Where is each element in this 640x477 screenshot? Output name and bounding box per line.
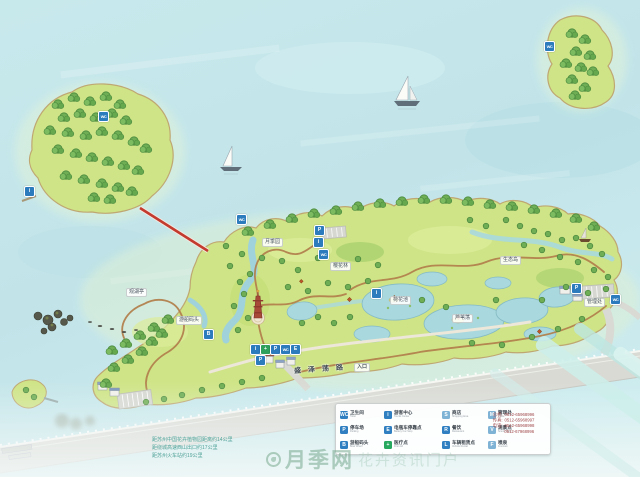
place-label: 月季园 bbox=[262, 238, 283, 247]
watermark-brand: 月季网 bbox=[285, 444, 354, 474]
watermark: 月季网 花卉资讯门户 bbox=[266, 444, 460, 474]
contact-numbers: 总机:0512-65968996 传真:0512-65968997 电话:051… bbox=[493, 412, 546, 435]
distance-line: 距苏州火车站约19公里 bbox=[152, 452, 233, 460]
battery-car-icon: E bbox=[384, 426, 392, 434]
parking-badge: P bbox=[255, 355, 266, 366]
info-badge: i bbox=[24, 186, 35, 197]
legend-item-toilet: WC 卫生间Toilet bbox=[340, 407, 384, 422]
entrance-sign: 入口 bbox=[354, 363, 370, 372]
boat-badge: B bbox=[203, 329, 214, 340]
place-label: 管理处 bbox=[584, 298, 605, 307]
place-label: 游船码头 bbox=[176, 316, 202, 325]
parking-badge: P bbox=[571, 283, 582, 294]
legend-item-tourist-center: i 游客中心Tourist Center bbox=[384, 407, 442, 422]
legend-item-restaurant: R 餐饮Restaurant bbox=[442, 422, 488, 437]
toilet-badge: WC bbox=[318, 249, 329, 260]
fountain-icon: F bbox=[488, 441, 496, 449]
shop-icon: S bbox=[442, 411, 450, 419]
cart-badge: E bbox=[290, 344, 301, 355]
info-badge: i bbox=[371, 288, 382, 299]
place-label: 荷花池 bbox=[390, 296, 411, 305]
legend-item-fountain: F 喷泉Fountain bbox=[488, 437, 532, 452]
watermark-logo-icon bbox=[266, 452, 281, 467]
info-icon: i bbox=[384, 411, 392, 419]
legend-item-battery-car-stop: E 电瓶车停靠点Battery Car Stop bbox=[384, 422, 442, 437]
toilet-badge: WC bbox=[236, 214, 247, 225]
distance-line: 距绕城高速西山出口约17公里 bbox=[152, 444, 233, 452]
place-label: 芦苇荡 bbox=[452, 314, 473, 323]
toilet-icon: WC bbox=[340, 411, 348, 419]
toilet-badge: WC bbox=[544, 41, 555, 52]
roadside-smudge bbox=[55, 414, 95, 430]
distance-line: 距苏州中国花卉植物园距离约14公里 bbox=[152, 436, 233, 444]
rock-islets bbox=[34, 310, 73, 334]
southwest-islet bbox=[12, 380, 58, 408]
restaurant-icon: R bbox=[442, 426, 450, 434]
place-label: 樱花林 bbox=[330, 262, 351, 271]
legend-item-shop: S 商店Shopping Area bbox=[442, 407, 488, 422]
info-badge: i bbox=[313, 237, 324, 248]
place-label: 观湖亭 bbox=[126, 288, 147, 297]
toilet-badge: WC bbox=[610, 294, 621, 305]
parking-badge: P bbox=[314, 225, 325, 236]
watermark-suffix: 花卉资讯门户 bbox=[358, 449, 460, 470]
legend-item-parking: P 停车场Parking bbox=[340, 422, 384, 437]
distance-notes: 距苏州中国花卉植物园距离约14公里 距绕城高速西山出口约17公里 距苏州火车站约… bbox=[152, 436, 233, 460]
parking-icon: P bbox=[340, 426, 348, 434]
place-label: 生态岛 bbox=[500, 256, 521, 265]
sailboat-west bbox=[220, 146, 242, 174]
parking-lot-north bbox=[322, 226, 347, 239]
toilet-badge: WC bbox=[98, 111, 109, 122]
park-map: WC i WC WC P i WC i P WC i + P WC E P B … bbox=[0, 0, 640, 477]
